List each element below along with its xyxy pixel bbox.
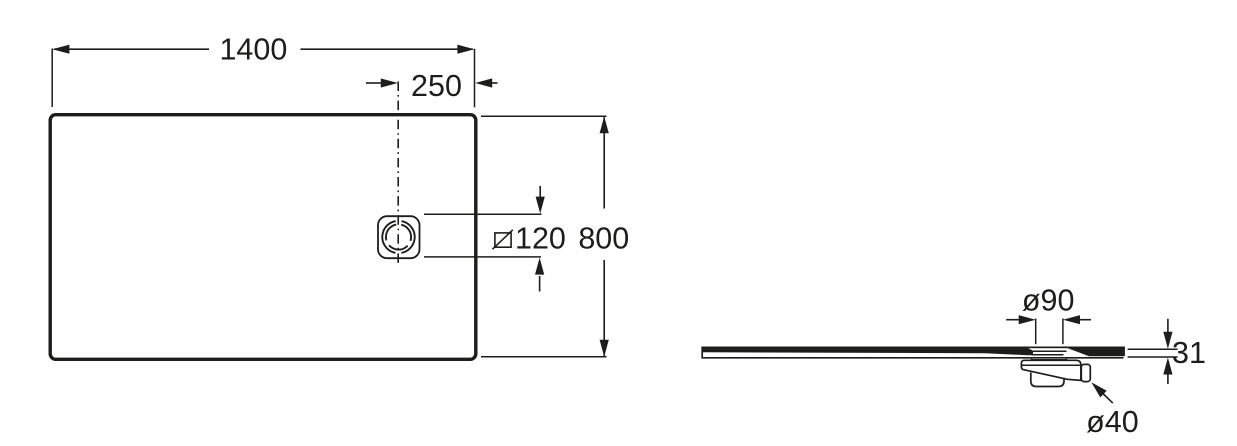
svg-text:800: 800: [578, 222, 629, 256]
svg-text:120: 120: [515, 222, 566, 256]
svg-text:250: 250: [411, 69, 462, 103]
svg-text:1400: 1400: [219, 32, 287, 66]
svg-text:ø90: ø90: [1022, 284, 1075, 318]
svg-text:31: 31: [1172, 336, 1206, 370]
svg-text:ø40: ø40: [1086, 405, 1139, 439]
